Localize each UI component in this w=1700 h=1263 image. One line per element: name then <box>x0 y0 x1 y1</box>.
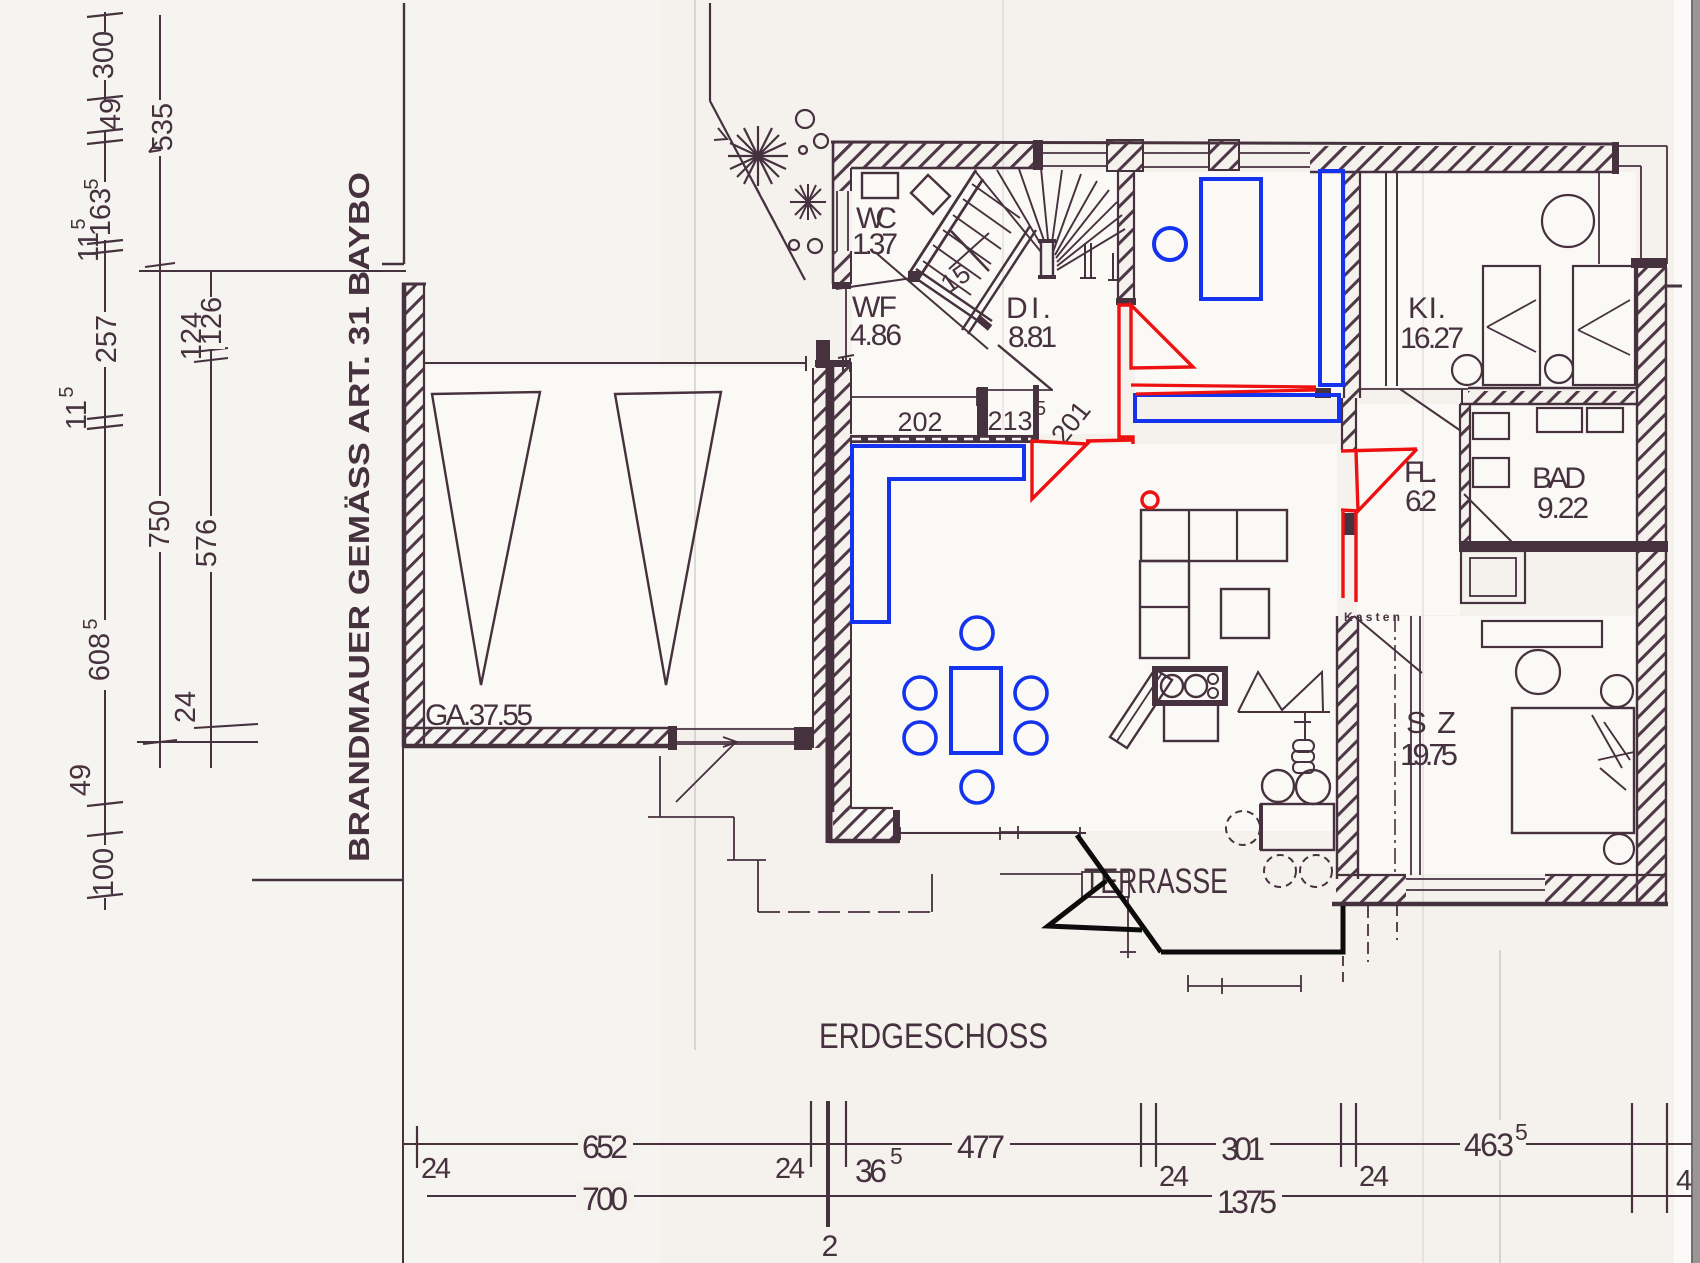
svg-text:5: 5 <box>68 218 90 229</box>
svg-text:49: 49 <box>65 764 97 796</box>
svg-text:126: 126 <box>196 297 228 345</box>
svg-text:24: 24 <box>170 691 202 723</box>
svg-text:19.75: 19.75 <box>1400 737 1458 772</box>
svg-text:BAD: BAD <box>1532 462 1586 495</box>
svg-text:1.37: 1.37 <box>852 228 898 261</box>
svg-text:5: 5 <box>1515 1119 1528 1145</box>
svg-text:100: 100 <box>88 848 120 896</box>
svg-text:49: 49 <box>95 98 127 130</box>
svg-text:BRANDMAUER GEMÄSS ART. 31 BAYB: BRANDMAUER GEMÄSS ART. 31 BAYBO <box>343 172 376 862</box>
svg-text:24: 24 <box>421 1153 451 1185</box>
svg-text:24: 24 <box>1159 1161 1189 1193</box>
svg-text:213: 213 <box>987 406 1032 436</box>
svg-text:ERDGESCHOSS: ERDGESCHOSS <box>819 1017 1048 1056</box>
svg-text:11: 11 <box>61 400 93 430</box>
svg-text:300: 300 <box>88 31 120 79</box>
svg-text:36: 36 <box>855 1153 887 1189</box>
svg-text:16.27: 16.27 <box>1400 322 1464 355</box>
svg-text:5: 5 <box>80 618 102 629</box>
svg-text:576: 576 <box>191 519 223 567</box>
svg-text:1375: 1375 <box>1217 1184 1277 1220</box>
svg-text:KI.: KI. <box>1408 292 1446 325</box>
svg-text:4.86: 4.86 <box>850 319 902 352</box>
svg-text:5: 5 <box>56 386 78 397</box>
svg-text:750: 750 <box>144 500 176 548</box>
svg-text:202: 202 <box>897 407 942 437</box>
svg-text:477: 477 <box>957 1129 1005 1165</box>
svg-text:5: 5 <box>890 1143 903 1169</box>
svg-text:700: 700 <box>582 1181 628 1217</box>
svg-text:9.22: 9.22 <box>1537 492 1589 525</box>
svg-text:463: 463 <box>1464 1127 1514 1163</box>
svg-text:8.81: 8.81 <box>1008 321 1057 354</box>
svg-text:24: 24 <box>1359 1161 1389 1193</box>
svg-text:4: 4 <box>1676 1165 1692 1197</box>
svg-text:301: 301 <box>1221 1131 1265 1167</box>
svg-text:11: 11 <box>73 232 105 262</box>
svg-text:2: 2 <box>822 1230 839 1263</box>
svg-text:257: 257 <box>91 315 123 363</box>
svg-text:535: 535 <box>147 103 179 151</box>
svg-text:652: 652 <box>582 1129 628 1165</box>
svg-text:608: 608 <box>84 633 116 681</box>
svg-text:6.2: 6.2 <box>1405 485 1437 518</box>
svg-text:5: 5 <box>81 178 103 189</box>
svg-text:24: 24 <box>775 1153 805 1185</box>
